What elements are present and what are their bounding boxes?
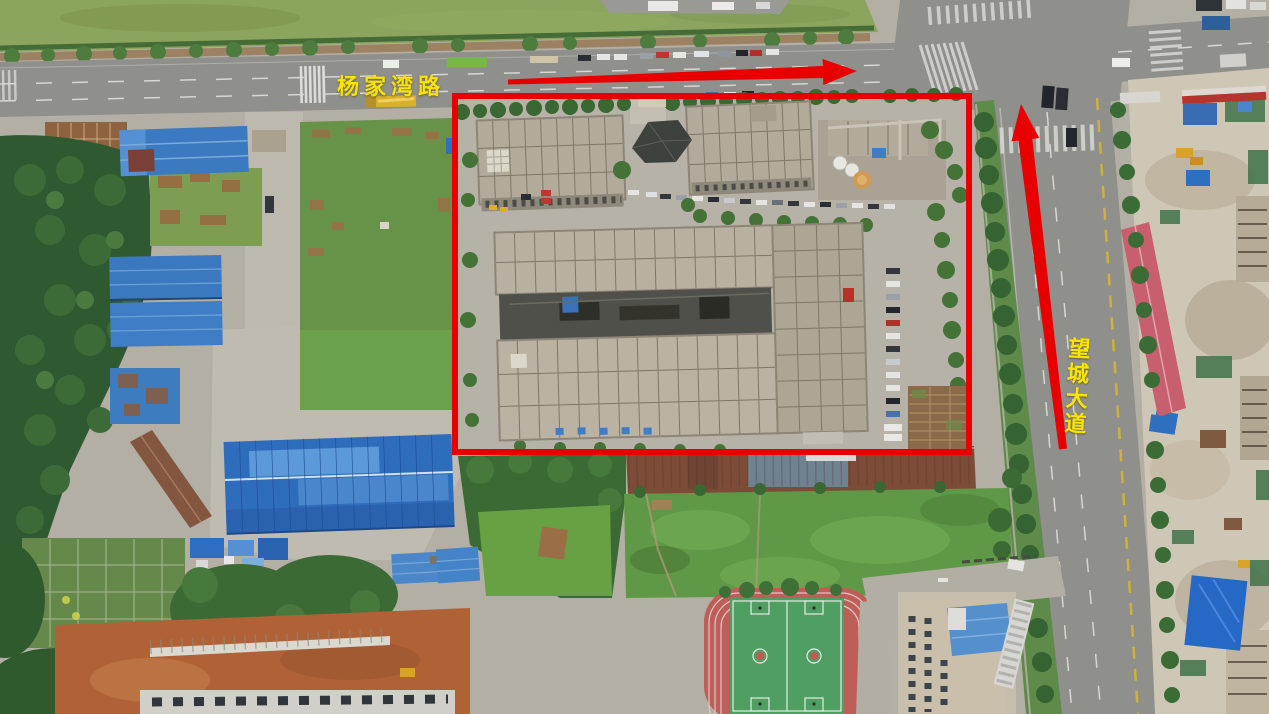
green-field-left: [300, 330, 466, 410]
loader-machine: [400, 668, 415, 677]
basketball-courts: [704, 578, 876, 714]
red-truck: [843, 288, 854, 302]
garden-field-left: [150, 168, 262, 246]
top-edge-road: [600, 0, 790, 14]
left-crosswalk-fragment: [2, 70, 17, 100]
gray-shed: [252, 130, 286, 152]
factory-courtyard: [499, 287, 772, 340]
gray-building-bottom: [140, 690, 455, 714]
factory-site: [454, 87, 972, 456]
gate-structure: [638, 99, 666, 107]
office-building-west: [477, 115, 626, 211]
blue-building-rusty: [110, 368, 180, 424]
overgrown-garden: [300, 118, 456, 338]
blue-building-north: [119, 126, 249, 176]
office-building-center: [686, 101, 814, 194]
main-factory-building: [494, 223, 868, 453]
garden-plots-inside: [908, 386, 970, 450]
crane-truck: [366, 96, 416, 108]
blue-warehouse: [224, 434, 455, 534]
aerial-scene: [0, 0, 1269, 714]
white-truck: [806, 452, 856, 461]
construction-site: [55, 608, 470, 714]
aerial-photo: 杨家湾路 望城大道: [0, 0, 1269, 714]
